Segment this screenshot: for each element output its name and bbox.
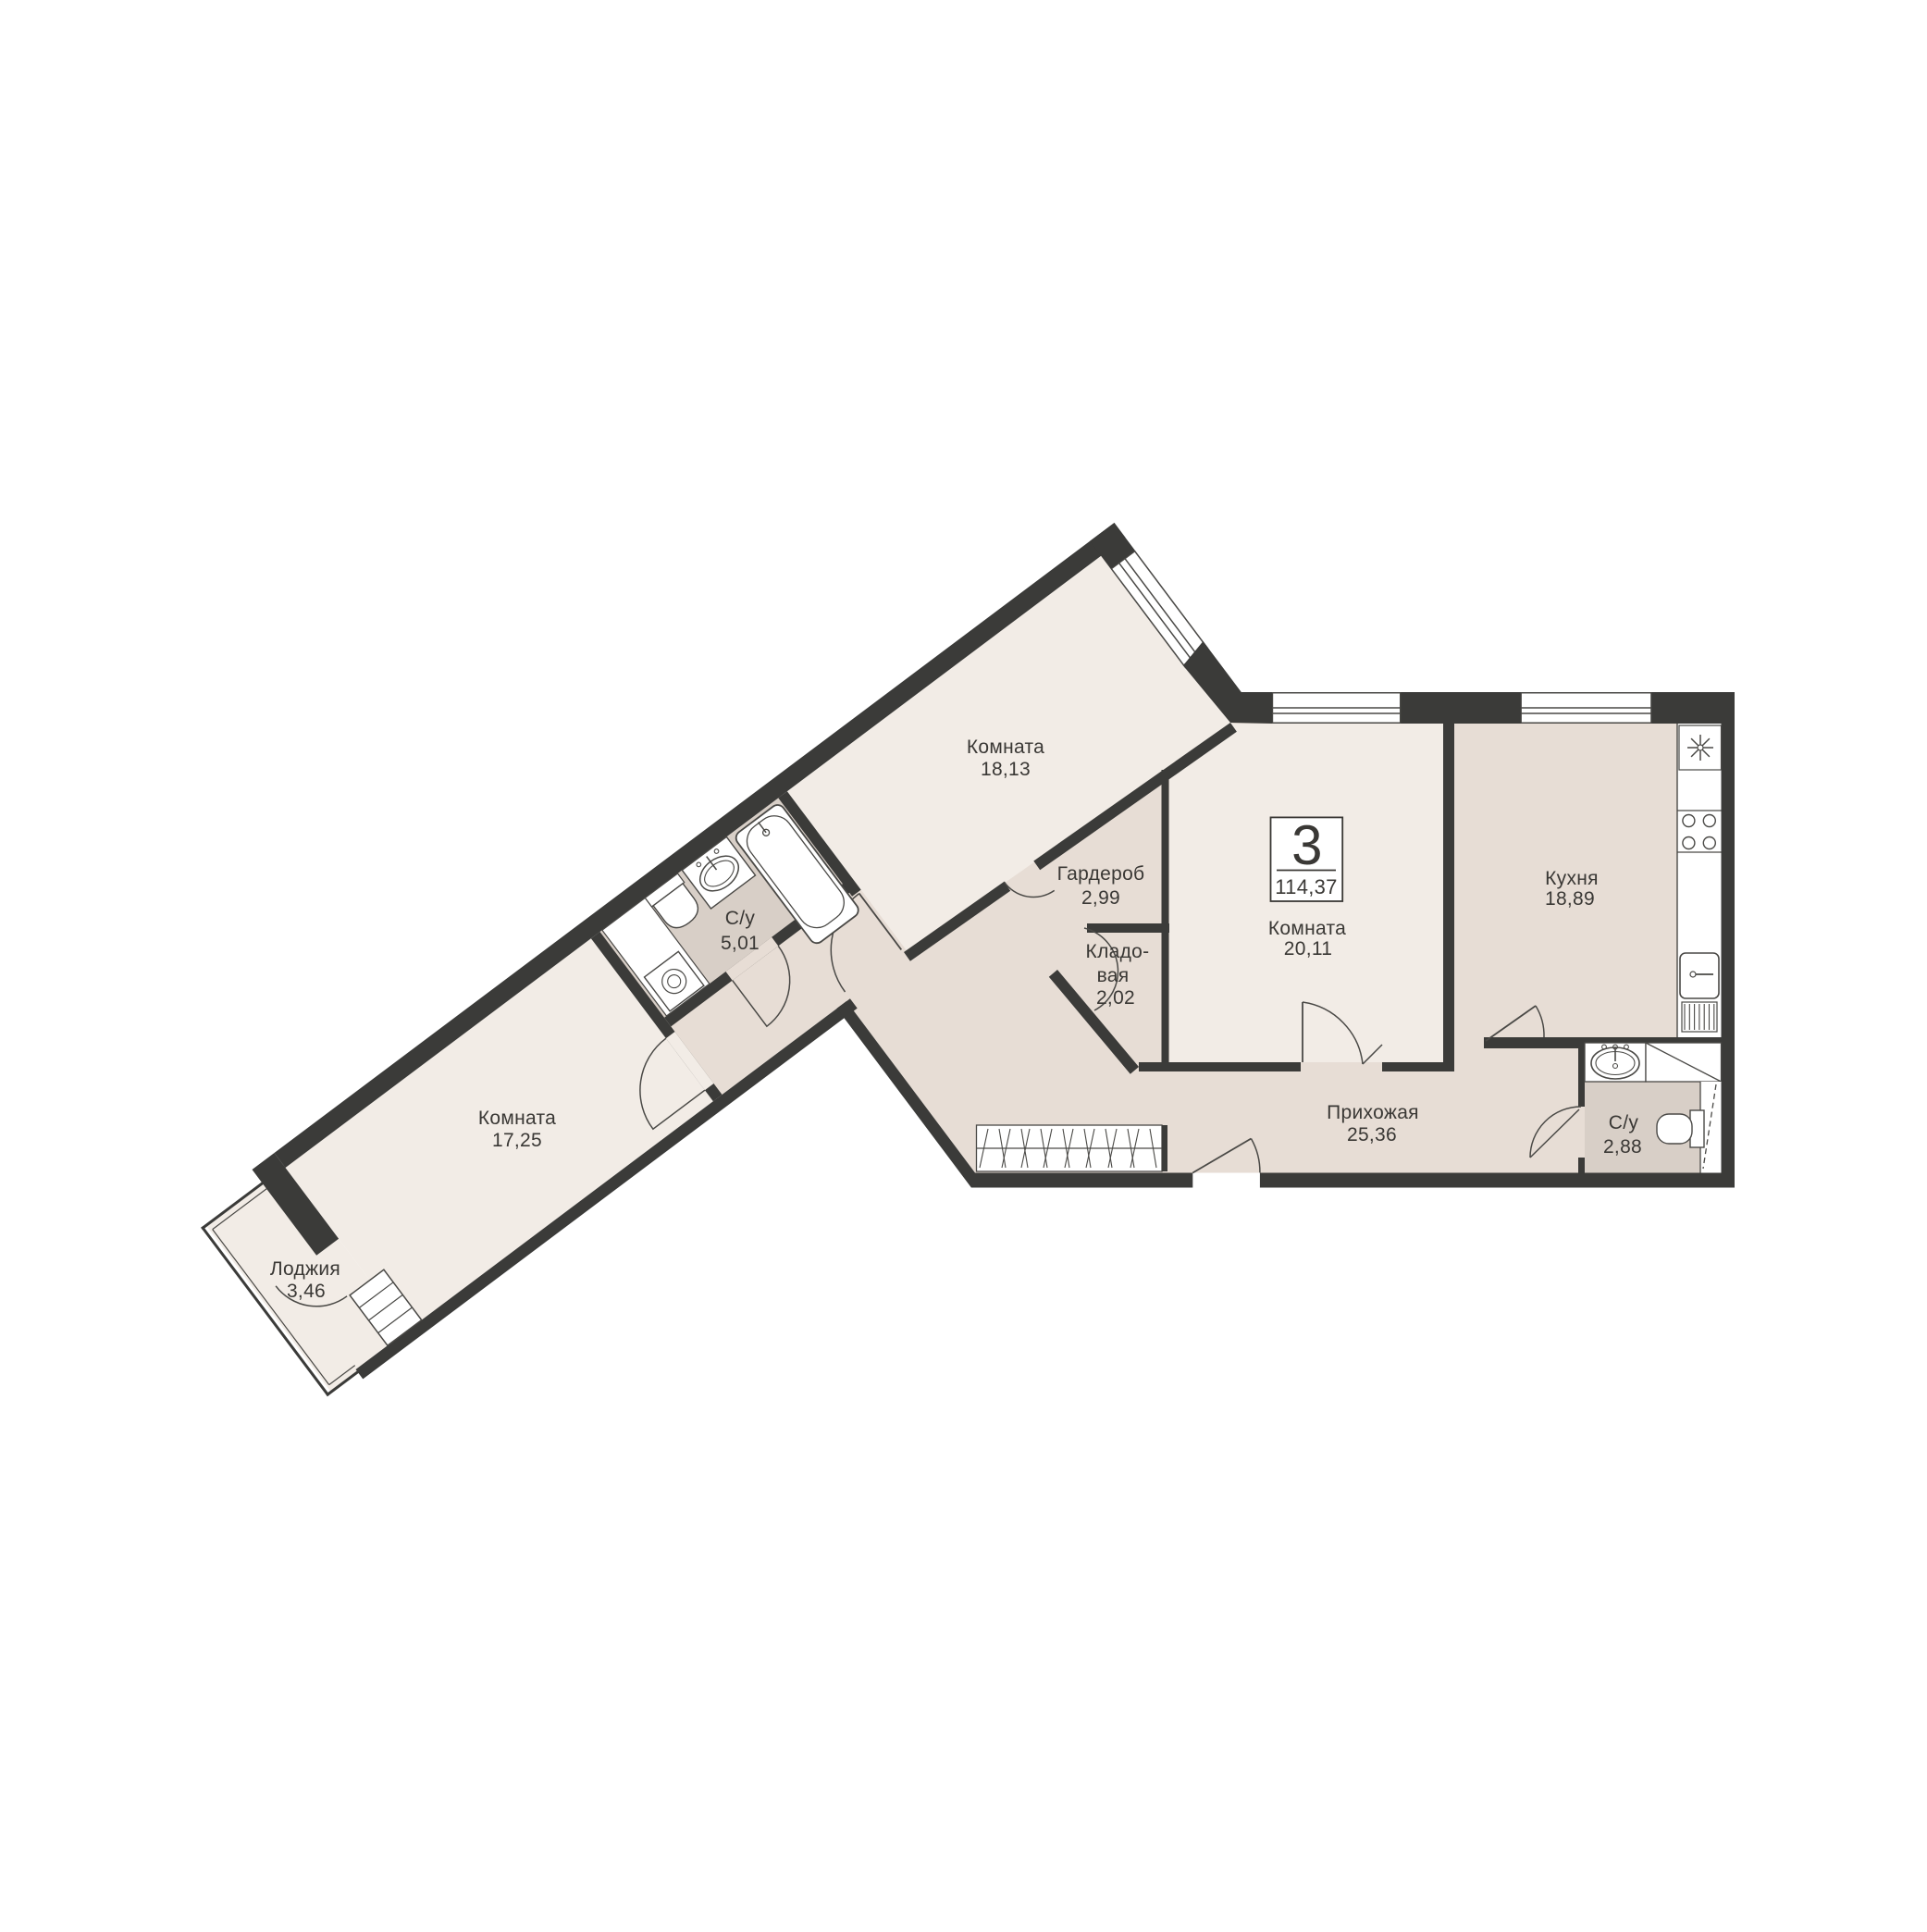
svg-text:5,01: 5,01: [721, 933, 760, 954]
svg-text:Гардероб: Гардероб: [1057, 863, 1145, 885]
svg-text:114,37: 114,37: [1275, 875, 1337, 898]
svg-text:25,36: 25,36: [1347, 1124, 1397, 1146]
svg-text:Комната: Комната: [478, 1108, 556, 1129]
svg-text:20,11: 20,11: [1284, 938, 1333, 960]
svg-text:С/у: С/у: [725, 908, 756, 929]
svg-text:Лоджия: Лоджия: [270, 1258, 340, 1280]
svg-text:3,46: 3,46: [287, 1281, 326, 1302]
svg-text:18,89: 18,89: [1545, 888, 1595, 910]
svg-text:вая: вая: [1097, 965, 1130, 986]
svg-text:Комната: Комната: [967, 737, 1044, 758]
svg-text:17,25: 17,25: [492, 1130, 542, 1151]
svg-text:Кладо-: Кладо-: [1086, 941, 1150, 962]
svg-text:Прихожая: Прихожая: [1327, 1102, 1419, 1123]
svg-text:Комната: Комната: [1268, 918, 1346, 939]
svg-text:18,13: 18,13: [981, 759, 1031, 780]
svg-text:Кухня: Кухня: [1545, 868, 1599, 889]
svg-text:2,99: 2,99: [1081, 887, 1120, 909]
svg-text:2,02: 2,02: [1096, 987, 1135, 1009]
svg-text:3: 3: [1291, 814, 1323, 876]
svg-text:С/у: С/у: [1609, 1112, 1639, 1133]
svg-text:2,88: 2,88: [1603, 1136, 1642, 1158]
